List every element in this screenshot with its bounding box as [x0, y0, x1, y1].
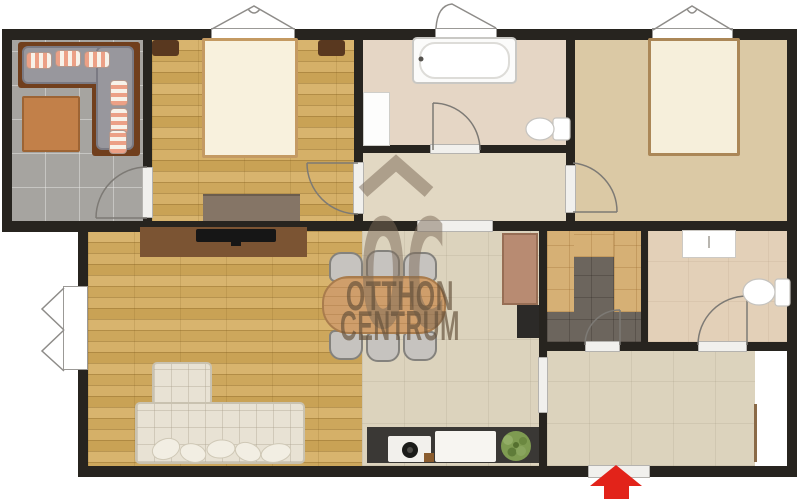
nightstand [318, 40, 345, 56]
wall-shower-wc [641, 221, 648, 351]
shower-tile-right [614, 231, 641, 312]
wall-kitchen-shower [539, 221, 547, 351]
sofa-pillow [109, 130, 127, 154]
wardrobe-door-line [754, 404, 757, 462]
wall-mid-horizontal-b [493, 221, 787, 231]
sofa-chaise [152, 362, 212, 406]
coffee-table [22, 96, 80, 152]
sink-counter [435, 431, 496, 462]
wall-left-loggia [2, 29, 12, 232]
door-bathroom [430, 144, 480, 154]
wall-loggia-bottom [2, 221, 152, 232]
dining-chair [403, 331, 437, 361]
dining-chair [366, 332, 400, 362]
wall-right [787, 29, 797, 477]
wardrobe-nook [755, 351, 787, 466]
wall-entry-top [539, 342, 797, 351]
window-symbol-living [42, 288, 64, 371]
window-symbol-bedroom1 [212, 6, 294, 29]
dining-chair [329, 330, 363, 360]
sofa-main [135, 402, 305, 464]
door-shower [585, 341, 620, 352]
tall-cabinet [502, 233, 538, 305]
door-loggia [142, 167, 153, 218]
door-bedroom1 [353, 162, 364, 214]
sofa-pillow [26, 52, 52, 69]
window-symbol-bedroom2 [653, 6, 732, 30]
room-hallway [362, 153, 567, 222]
tv [196, 229, 276, 242]
passage-entry-kitchen [538, 357, 548, 413]
front-door [588, 465, 650, 478]
door-bedroom2 [565, 165, 576, 213]
nightstand [152, 40, 179, 56]
passage-kitchen [417, 220, 493, 232]
bathtub-inner [419, 42, 510, 79]
door-wc [698, 341, 747, 352]
tv-stand [231, 242, 241, 246]
double-bed-1 [202, 38, 298, 158]
window-symbol-bathroom [436, 4, 496, 28]
double-bed-2 [648, 38, 740, 156]
window-living-room [63, 286, 88, 370]
room-entry-hall [547, 351, 755, 466]
sofa-pillow [84, 51, 110, 68]
wall-bottom [78, 466, 797, 477]
dining-table [322, 276, 446, 334]
bedroom1-dresser [203, 194, 300, 221]
sofa-pillow [55, 50, 81, 67]
shower-tile-left [547, 231, 574, 312]
washing-machine [363, 92, 390, 146]
kitchen-black-unit [517, 305, 539, 338]
washbasin [682, 230, 736, 258]
spice-box [424, 453, 434, 462]
floor-plan-canvas: OC OTTHON CENTRUM [0, 0, 800, 499]
sofa-pillow [110, 80, 128, 106]
